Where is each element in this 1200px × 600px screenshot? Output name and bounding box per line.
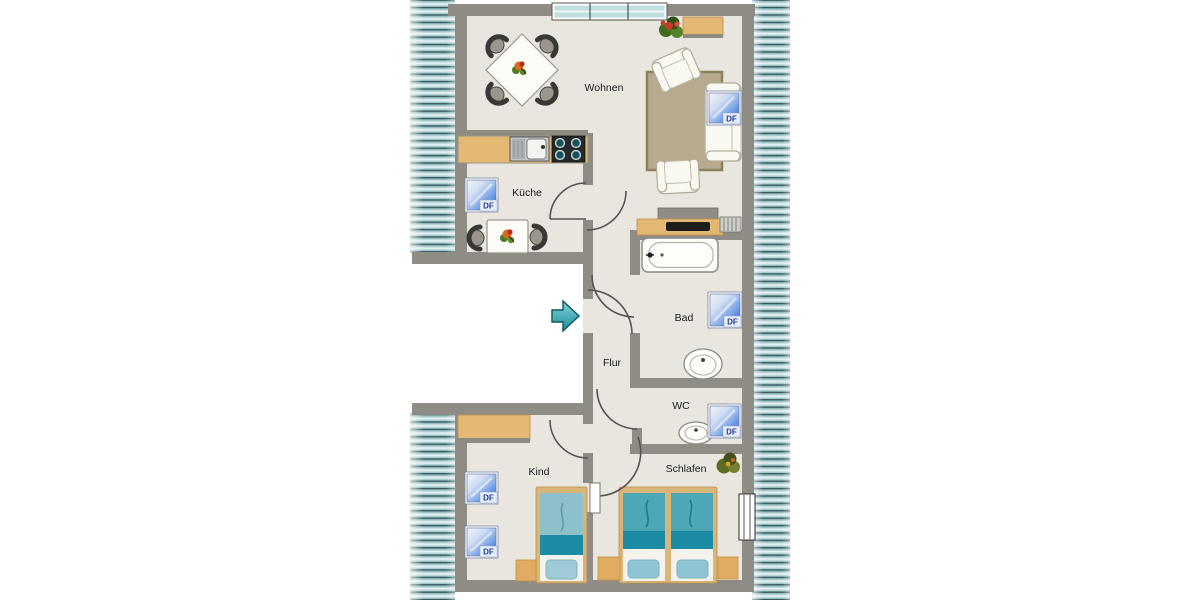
df-roof-window-kind-1: DF xyxy=(465,472,498,504)
bedside-stool xyxy=(598,557,620,580)
window-symbol-top xyxy=(552,3,667,20)
wall xyxy=(412,403,593,415)
df-label: DF xyxy=(483,548,494,557)
bedside-stool xyxy=(516,560,536,581)
sideboard-top xyxy=(683,17,723,38)
df-roof-window-bad: DF xyxy=(708,292,742,328)
dining-table xyxy=(483,32,562,109)
df-roof-window-wohnen: DF xyxy=(707,91,741,125)
roof-hatch-band-left-upper xyxy=(410,0,455,253)
room-label-wc: WC xyxy=(672,400,690,412)
wall xyxy=(635,378,747,388)
room-label-kueche: Küche xyxy=(512,187,542,199)
window-symbol-right xyxy=(739,494,755,540)
bed-double-icon xyxy=(619,487,717,583)
wall xyxy=(630,444,748,454)
room-label-kind: Kind xyxy=(528,466,549,478)
kitchen-sink-icon xyxy=(510,137,549,161)
kitchen-table xyxy=(468,220,546,253)
wall xyxy=(630,240,640,275)
df-label: DF xyxy=(483,202,494,211)
df-label: DF xyxy=(483,494,494,503)
df-roof-window-wc: DF xyxy=(708,404,741,438)
bed-single-icon xyxy=(536,487,587,583)
df-roof-window-kind-2: DF xyxy=(465,526,498,558)
room-label-schlafen: Schlafen xyxy=(666,463,707,475)
roof-hatch-band-left-lower xyxy=(410,412,455,600)
bedside-stool xyxy=(718,557,738,579)
wardrobe xyxy=(458,415,530,443)
stove-icon xyxy=(552,136,585,162)
washbasin-icon xyxy=(684,349,722,379)
roof-hatch-band-right xyxy=(752,0,790,600)
room-label-flur: Flur xyxy=(603,357,622,369)
df-roof-window-kueche: DF xyxy=(465,178,498,212)
room-label-bad: Bad xyxy=(675,312,694,324)
wall xyxy=(583,415,593,424)
armchair-icon-bottom xyxy=(656,159,700,194)
wall xyxy=(412,252,593,264)
floor-plan-canvas: DF DF DF DF DF DF Wohnen Küche xyxy=(0,0,1200,600)
df-label: DF xyxy=(726,428,737,437)
wall xyxy=(583,333,593,403)
door-leaf-schlafen xyxy=(590,483,600,513)
bathtub-icon xyxy=(642,238,718,272)
floor-plan-page: DF DF DF DF DF DF Wohnen Küche xyxy=(0,0,1200,600)
room-label-wohnen: Wohnen xyxy=(585,82,624,94)
wall xyxy=(583,220,593,299)
radiator-icon xyxy=(720,217,741,232)
df-label: DF xyxy=(727,318,738,327)
df-label: DF xyxy=(726,115,737,124)
entry-notch-cutout xyxy=(408,264,583,403)
